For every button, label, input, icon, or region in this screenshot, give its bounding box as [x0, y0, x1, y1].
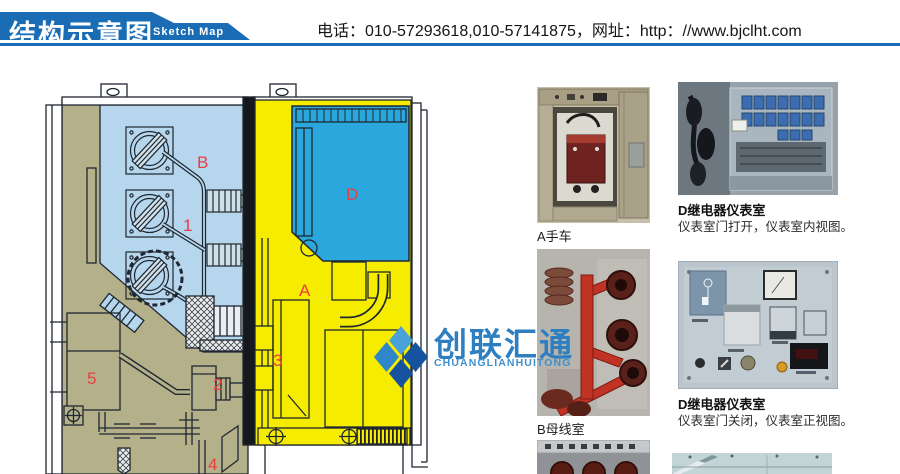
caption-photo-b: B母线室	[537, 419, 585, 438]
caption-photo-d-closed-desc: 仪表室门关闭，仪表室正视图。	[678, 410, 853, 429]
photo-d-instrument-open	[678, 82, 838, 195]
contact-info: 电话：010-57293618,010-57141875，网址：http：//w…	[317, 17, 802, 41]
header-divider	[0, 43, 900, 46]
page-title-en: Sketch Map	[153, 26, 224, 38]
label-busbar-room: B	[197, 153, 208, 172]
caption-photo-a: A手车	[537, 226, 572, 245]
label-breaker-room: A	[299, 281, 311, 300]
relay-room-region	[292, 106, 409, 261]
company-name-en: CHUANGLIANHUITONG	[434, 357, 572, 369]
photo-a-handcart	[537, 87, 650, 223]
photo-bottom-right-partial	[672, 453, 832, 474]
label-5: 5	[87, 369, 96, 388]
label-2: 2	[213, 375, 222, 394]
switchgear-sketch-diagram: B 1 D A 3 2 5 4	[40, 60, 460, 474]
photo-d-instrument-closed	[678, 261, 838, 389]
label-relay-room: D	[346, 185, 358, 204]
company-watermark: 创联汇通 CHUANGLIANHUITONG	[372, 318, 572, 396]
company-logo-icon	[372, 324, 430, 390]
photo-bottom-left-partial	[537, 440, 650, 474]
label-4: 4	[208, 455, 217, 474]
label-1: 1	[183, 216, 192, 235]
caption-photo-d-open-desc: 仪表室门打开，仪表室内视图。	[678, 216, 853, 235]
label-3: 3	[273, 351, 282, 370]
page-title: 结构示意图	[9, 13, 154, 52]
